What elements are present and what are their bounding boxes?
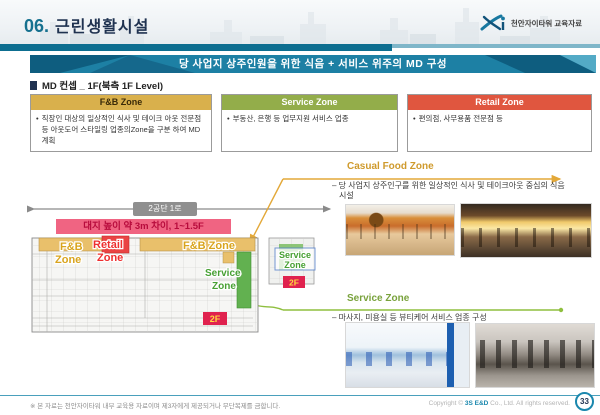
service-zone-heading: Service Zone <box>347 293 409 304</box>
bullet-square-icon <box>30 81 37 90</box>
logo-caption: 천안자이타워 교육자료 <box>511 18 582 29</box>
copyright-prefix: Copyright © <box>429 400 465 407</box>
fnb-zone-bullet: 직장인 대상의 일상적인 식사 및 테이크 아웃 전문점 등 아웃도어 스타일링… <box>42 114 206 147</box>
page-title: 06. 근린생활시설 <box>24 13 149 37</box>
casual-food-zone-desc: – 당 사업지 상주인구를 위한 일상적인 식사 및 테이크아웃 중심의 식음 … <box>332 181 572 202</box>
casual-food-zone-heading: Casual Food Zone <box>347 161 434 172</box>
floor-plan: F&B Zone Retail Zone F&B Zone Service Zo… <box>27 234 320 344</box>
street-name-badge: 2공단 1로 <box>133 202 197 216</box>
hair-salon-photo <box>475 323 595 388</box>
company-name: 3S E&D <box>465 400 488 407</box>
plan-label-fnb-left-2: Zone <box>55 254 81 266</box>
copyright-suffix: Co., Ltd. All rights reserved. <box>488 400 570 407</box>
plan-label-service-1: Service <box>205 268 241 279</box>
service-zone-title: Service Zone <box>222 95 397 110</box>
annex-label-service-1: Service <box>279 250 311 260</box>
service-zone-box: Service Zone •부동산, 은행 등 업무지원 서비스 업종 <box>221 94 398 152</box>
bullet-dot: • <box>227 114 230 125</box>
food-court-photo <box>345 204 455 256</box>
concept-label: MD 컨셉 _ 1F(북측 1F Level) <box>42 78 163 92</box>
plan-label-retail-1: Retail <box>93 239 123 251</box>
plan-label-retail-2: Zone <box>97 252 123 264</box>
xi-logo-icon <box>480 14 506 32</box>
page-number-badge: 33 <box>575 392 594 411</box>
header-divider-light <box>392 44 600 48</box>
annex-label-service-2: Zone <box>284 260 306 270</box>
section-number: 06. <box>24 16 49 37</box>
footer-disclaimer: ※ 본 자료는 천안자이타워 내부 교육용 자료이며 제3자에게 제공되거나 무… <box>30 400 280 410</box>
zone-summary-row: F&B Zone •직장인 대상의 일상적인 식사 및 테이크 아웃 전문점 등… <box>30 94 592 152</box>
footer-divider <box>0 395 600 396</box>
restaurant-counter-photo <box>460 203 592 258</box>
floor-badge-annex-text: 2F <box>289 278 299 288</box>
footer-copyright: Copyright © 3S E&D Co., Ltd. All rights … <box>429 400 570 407</box>
concept-label-row: MD 컨셉 _ 1F(북측 1F Level) <box>30 78 163 92</box>
plan-label-fnb-left-1: F&B <box>60 241 83 253</box>
fnb-zone-title: F&B Zone <box>31 95 211 110</box>
bullet-dot: • <box>36 114 39 147</box>
plan-label-fnb-right: F&B Zone <box>183 240 235 252</box>
header-divider-dark <box>0 44 392 51</box>
service-underline-dot <box>559 308 563 312</box>
bank-interior-photo <box>345 322 470 388</box>
service-strip-main <box>237 252 251 308</box>
section-title: 근린생활시설 <box>55 13 149 37</box>
fnb-zone-box: F&B Zone •직장인 대상의 일상적인 식사 및 테이크 아웃 전문점 등… <box>30 94 212 152</box>
retail-zone-title: Retail Zone <box>408 95 591 110</box>
plan-label-service-2: Zone <box>212 281 236 292</box>
bullet-dot: • <box>413 114 416 125</box>
banner-text: 당 사업지 상주인원을 위한 식음 + 서비스 위주의 MD 구성 <box>30 55 596 73</box>
key-message-banner: 당 사업지 상주인원을 위한 식음 + 서비스 위주의 MD 구성 <box>30 55 596 73</box>
service-zone-bullet: 부동산, 은행 등 업무지원 서비스 업종 <box>233 114 349 125</box>
slide-header: 06. 근린생활시설 천안자이타워 교육자료 <box>0 0 600 44</box>
retail-zone-box: Retail Zone •편의점, 사무용품 전문점 등 <box>407 94 592 152</box>
floor-badge-main-text: 2F <box>210 314 221 324</box>
site-height-note: 대지 높이 약 3m 차이, 1~1.5F <box>56 219 231 234</box>
fnb-small-block <box>223 252 234 263</box>
retail-zone-bullet: 편의점, 사무용품 전문점 등 <box>419 114 503 125</box>
brand-logo: 천안자이타워 교육자료 <box>480 14 582 32</box>
